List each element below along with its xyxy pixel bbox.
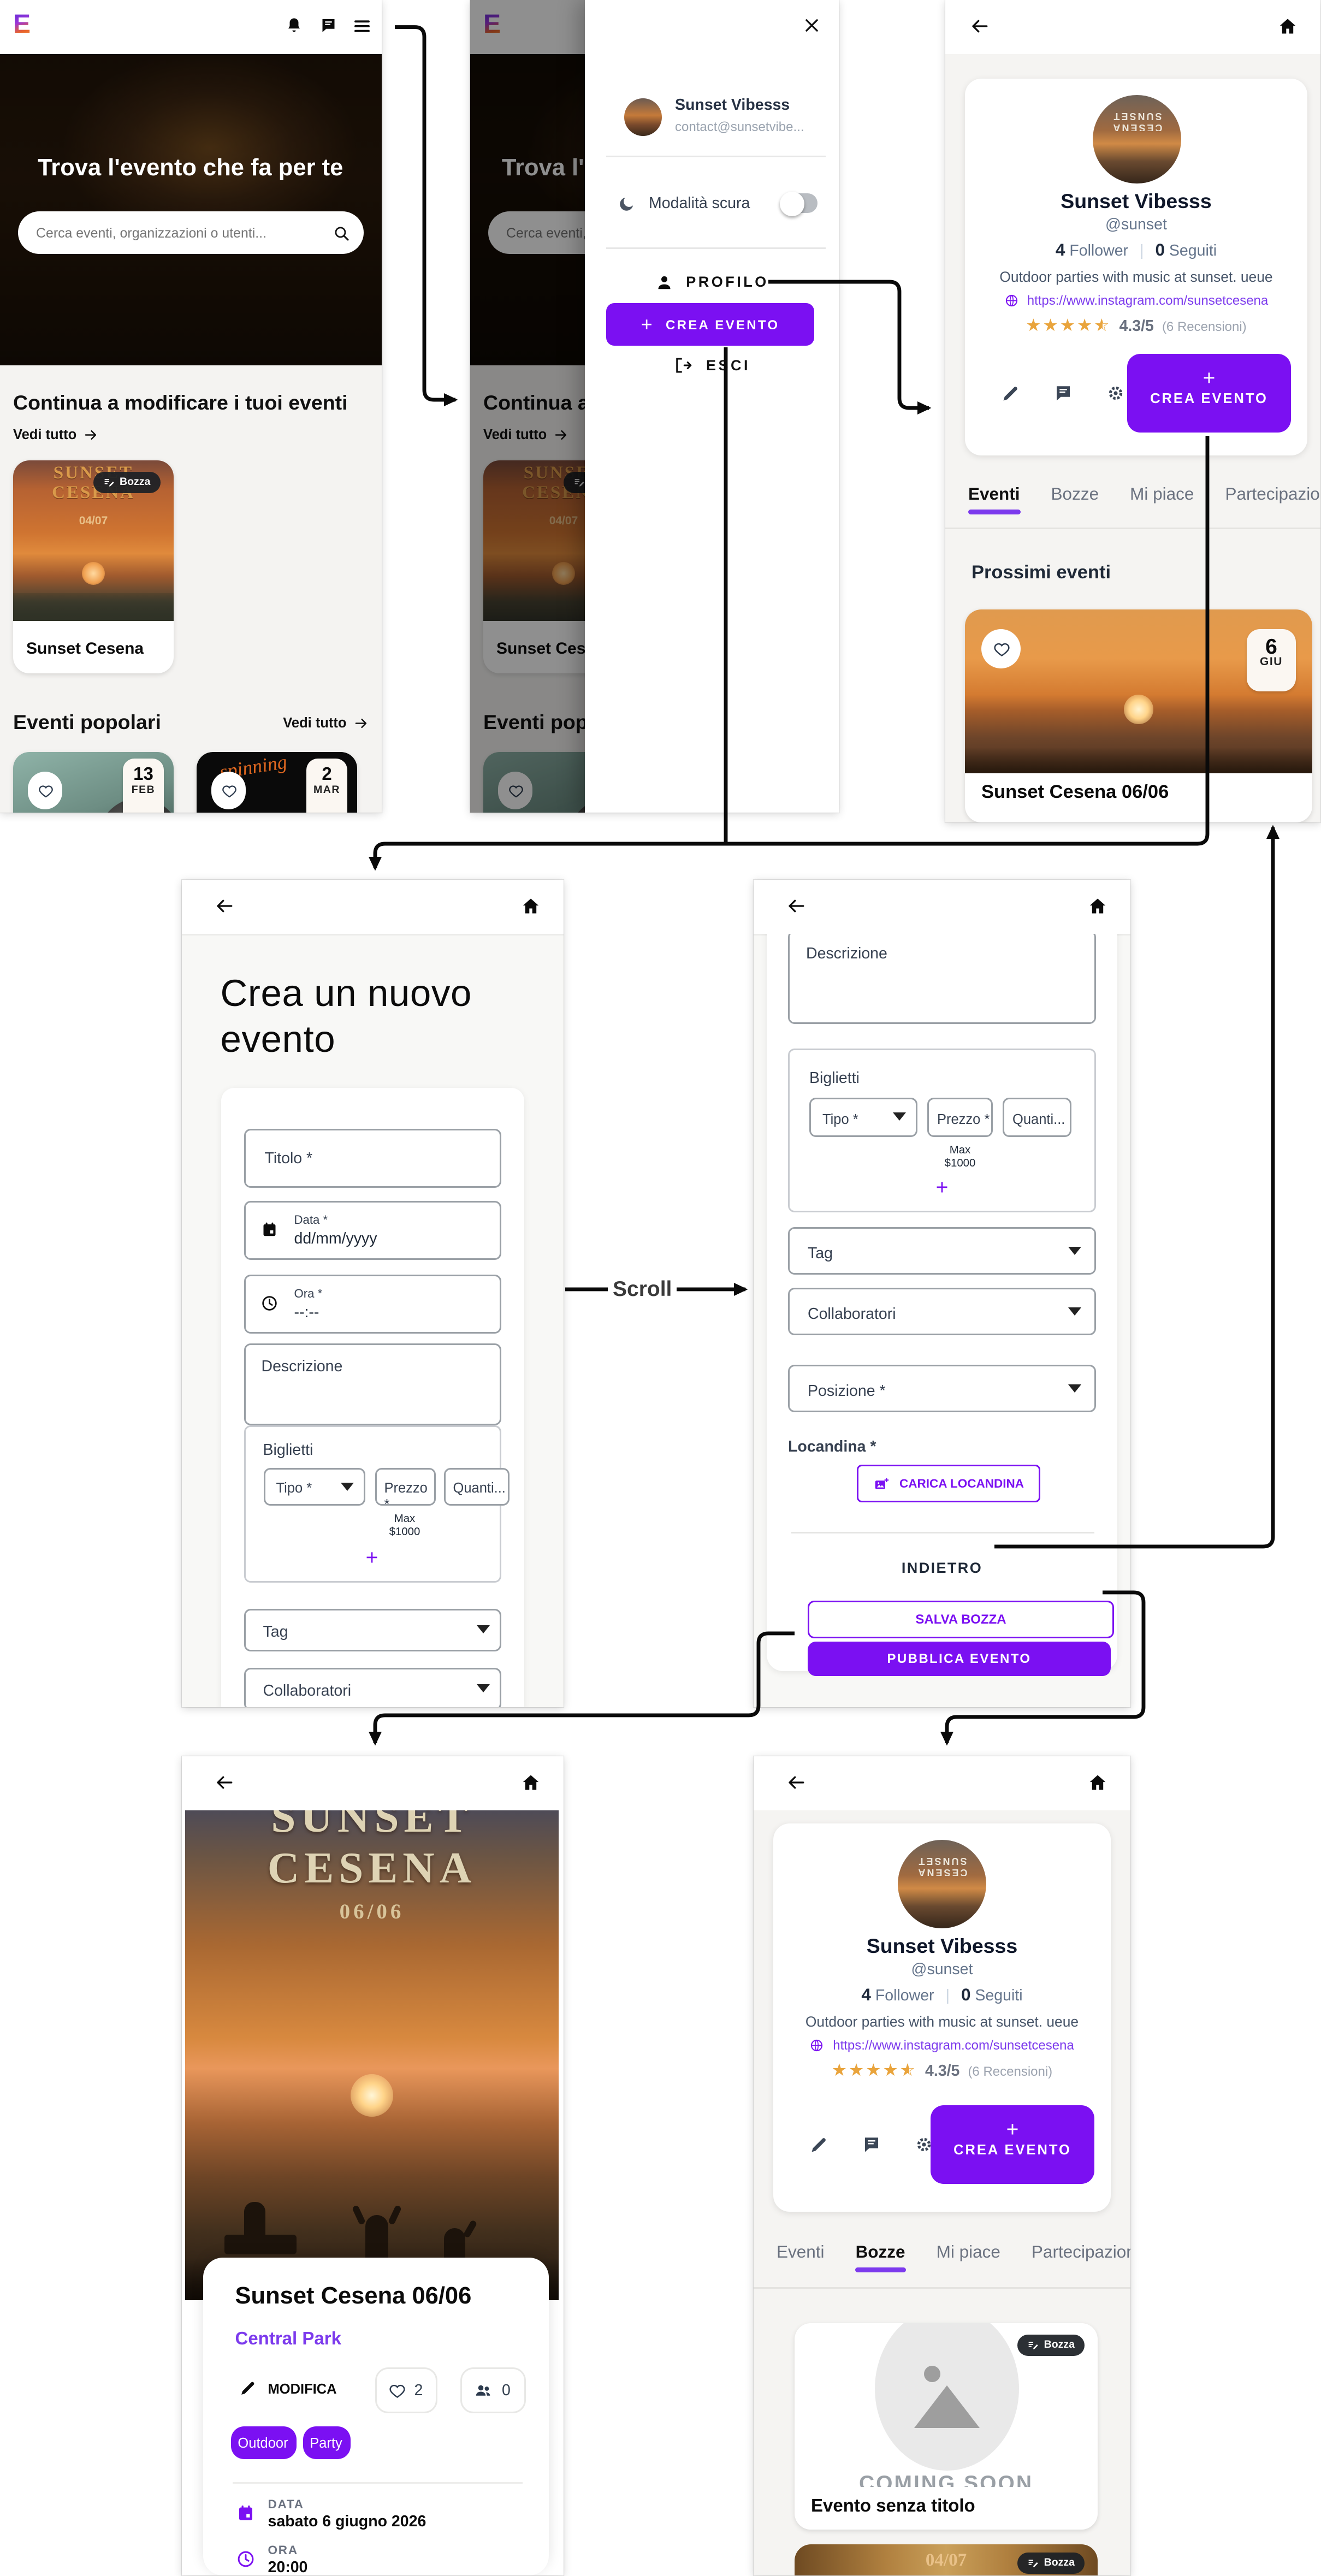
screen-create-event: Crea un nuovo evento Titolo * Data * dd/… — [181, 880, 563, 1707]
quantita-field[interactable]: Quanti... — [1003, 1098, 1071, 1137]
event-date-badge: 2 MAR — [306, 759, 347, 813]
screen-home-menu-open: E Trova l'evento che fa per te Continua … — [470, 0, 839, 813]
poster-date: 04/07 — [13, 516, 174, 528]
profile-handle: @sunset — [773, 1961, 1111, 1979]
website-link[interactable]: https://www.instagram.com/sunsetcesena — [833, 2038, 1074, 2053]
descrizione-label: Descrizione — [262, 1358, 343, 1376]
moon-icon — [618, 194, 636, 212]
event-date-badge: 13 FEB — [123, 759, 164, 813]
tipo-select[interactable]: Tipo * — [263, 1468, 365, 1506]
home-header: E — [0, 0, 381, 54]
screen-create-event-scrolled: Descrizione Biglietti Tipo * Prezzo * Qu… — [754, 880, 1130, 1707]
quantita-label: Quanti... — [453, 1479, 506, 1496]
data-label: Data * — [294, 1212, 328, 1227]
home-icon[interactable] — [1088, 896, 1107, 916]
tag-select[interactable]: Tag — [244, 1609, 501, 1651]
ora-label: ORA — [268, 2543, 298, 2557]
screen-profile: CESENASUNSET Sunset Vibesss @sunset 4 Fo… — [945, 0, 1321, 822]
posizione-select[interactable]: Posizione * — [788, 1365, 1096, 1412]
upcoming-event-card[interactable]: 6 GIU Sunset Cesena 06/06 — [965, 609, 1312, 822]
profile-card: CESENASUNSET Sunset Vibesss @sunset 4 Fo… — [773, 1823, 1111, 2212]
heart-icon — [992, 640, 1010, 658]
create-event-button[interactable]: + CREA EVENTO — [1127, 354, 1291, 433]
logout-menu-item[interactable]: ESCI — [585, 352, 839, 378]
event-month: GIU — [1247, 657, 1296, 668]
upload-poster-label: CARICA LOCANDINA — [899, 1476, 1024, 1491]
max-price-note: Max$1000 — [375, 1514, 435, 1540]
back-icon[interactable] — [214, 896, 234, 916]
publish-event-button[interactable]: PUBBLICA EVENTO — [808, 1642, 1111, 1676]
star-icons: ★★★★☆★ — [832, 2063, 917, 2081]
create-event-form: Titolo * Data * dd/mm/yyyy Ora * --:-- D… — [221, 1088, 524, 1707]
create-event-label: CREA EVENTO — [931, 2141, 1094, 2158]
profile-name: Sunset Vibesss — [965, 190, 1307, 213]
data-value: sabato 6 giugno 2026 — [268, 2513, 426, 2531]
profile-menu-item[interactable]: PROFILO — [585, 269, 839, 295]
ora-field[interactable]: Ora * --:-- — [244, 1275, 501, 1334]
descrizione-label: Descrizione — [806, 945, 887, 963]
posizione-label: Posizione * — [808, 1383, 886, 1401]
tab-mi-piace[interactable]: Mi piace — [1130, 485, 1194, 514]
back-icon[interactable] — [970, 16, 990, 36]
event-location-link[interactable]: Central Park — [235, 2330, 341, 2349]
poster-line2: CESENA — [185, 1843, 559, 1894]
see-all-drafts-link[interactable]: Vedi tutto — [13, 426, 98, 442]
add-ticket-button[interactable]: + — [790, 1175, 1094, 1199]
close-icon[interactable] — [803, 16, 821, 34]
settings-icon[interactable] — [1106, 383, 1125, 403]
biglietti-label: Biglietti — [263, 1442, 313, 1460]
popular-heading: Eventi popolari — [13, 711, 161, 734]
screen-profile-drafts: CESENASUNSET Sunset Vibesss @sunset 4 Fo… — [754, 1756, 1130, 2575]
add-ticket-button[interactable]: + — [245, 1545, 499, 1570]
clock-icon — [235, 2549, 255, 2569]
see-all-popular-link[interactable]: Vedi tutto — [283, 714, 368, 731]
tipo-label: Tipo * — [276, 1479, 312, 1496]
hero-title: Trova l'evento che fa per te — [0, 156, 381, 182]
screen-event-detail: SUNSET CESENA 06/06 Sunset Cesena 06/06 … — [181, 1756, 563, 2575]
publish-event-label: PUBBLICA EVENTO — [887, 1651, 1031, 1666]
star-icons: ★★★★☆★ — [1026, 318, 1111, 336]
website-link[interactable]: https://www.instagram.com/sunsetcesena — [1027, 293, 1269, 308]
max-price-note: Max$1000 — [927, 1145, 993, 1171]
continue-heading: Continua a modificare i tuoi eventi — [13, 392, 348, 414]
page-title: Crea un nuovo evento — [221, 972, 532, 1062]
home-icon[interactable] — [520, 896, 540, 916]
clock-icon — [260, 1294, 278, 1312]
edit-note-icon — [1028, 2340, 1039, 2351]
bozza-badge: Bozza — [93, 472, 160, 493]
menu-drawer: Sunset Vibesss contact@sunsetvibe... Mod… — [585, 0, 839, 813]
messages-icon[interactable] — [319, 16, 337, 34]
quantita-field[interactable]: Quanti... — [443, 1468, 509, 1506]
drawer-user-email: contact@sunsetvibe... — [675, 120, 826, 134]
image-plus-icon — [873, 1476, 890, 1492]
attendees-count: 0 — [502, 2382, 511, 2400]
globe-icon — [1004, 293, 1019, 308]
titolo-field[interactable]: Titolo * — [244, 1129, 501, 1188]
profile-bio: Outdoor parties with music at sunset. ue… — [965, 269, 1307, 285]
create-event-label: CREA EVENTO — [666, 317, 779, 332]
profile-card: CESENASUNSET Sunset Vibesss @sunset 4 Fo… — [965, 79, 1307, 455]
followers-count: 4 — [1056, 241, 1065, 260]
event-title: Sunset Cesena 06/06 — [981, 783, 1169, 803]
tab-partecipazioni[interactable]: Partecipazior — [1032, 2243, 1130, 2272]
create-event-button[interactable]: + CREA EVENTO — [931, 2105, 1094, 2184]
tab-bozze[interactable]: Bozze — [856, 2243, 905, 2272]
profile-name: Sunset Vibesss — [773, 1935, 1111, 1958]
tab-eventi[interactable]: Eventi — [968, 485, 1020, 514]
avatar: CESENASUNSET — [898, 1840, 986, 1928]
home-icon[interactable] — [1088, 1773, 1107, 1792]
create-event-label: CREA EVENTO — [1127, 390, 1291, 406]
event-poster: SUNSET CESENA 06/06 — [185, 1807, 559, 2300]
following-label: Seguiti — [1169, 242, 1217, 260]
tipo-select[interactable]: Tipo * — [809, 1098, 917, 1137]
event-month: MAR — [306, 785, 347, 796]
create-event-form: Descrizione Biglietti Tipo * Prezzo * Qu… — [767, 903, 1117, 1671]
collaboratori-select[interactable]: Collaboratori — [788, 1288, 1096, 1335]
drawer-user-name: Sunset Vibesss — [675, 97, 790, 115]
calendar-icon — [235, 2503, 255, 2523]
popular-event-card[interactable]: spinning 2 MAR — [197, 752, 357, 813]
create-event-button[interactable]: + CREA EVENTO — [606, 303, 814, 346]
tag-chip-party: Party — [303, 2426, 350, 2459]
event-info-card: Sunset Cesena 06/06 Central Park MODIFIC… — [203, 2258, 548, 2575]
modifica-button[interactable]: MODIFICA — [239, 2379, 337, 2397]
reviews-count: (6 Recensioni) — [1162, 319, 1247, 334]
collaboratori-select[interactable]: Collaboratori — [244, 1668, 501, 1707]
biglietti-group: Biglietti Tipo * Prezzo * Quanti... Max$… — [244, 1425, 501, 1583]
bozza-label: Bozza — [120, 477, 150, 488]
plus-icon: + — [1127, 365, 1291, 390]
caret-down-icon — [476, 1684, 489, 1692]
attendees-pill[interactable]: 0 — [460, 2367, 525, 2413]
profile-rating-row: ★★★★☆★ 4.3/5 (6 Recensioni) — [965, 318, 1307, 336]
prezzo-field[interactable]: Prezzo * — [927, 1098, 993, 1137]
data-field[interactable]: Data * dd/mm/yyyy — [244, 1201, 501, 1260]
data-value: dd/mm/yyyy — [294, 1230, 377, 1248]
logout-label: ESCI — [706, 357, 750, 374]
person-icon — [655, 273, 673, 291]
event-day: 13 — [123, 765, 164, 785]
event-month: FEB — [123, 785, 164, 796]
draft-card[interactable]: COMING SOON Bozza Evento senza titolo — [795, 2323, 1098, 2530]
tab-eventi[interactable]: Eventi — [777, 2243, 825, 2272]
profile-tabs: Eventi Bozze Mi piace Partecipazior — [968, 485, 1321, 514]
bozza-badge: Bozza — [1018, 2553, 1085, 2574]
plus-icon: + — [641, 313, 654, 336]
heart-icon — [37, 783, 54, 799]
poster-line1: SUNSET — [185, 1807, 559, 1843]
tag-select[interactable]: Tag — [788, 1227, 1096, 1275]
people-icon — [474, 2380, 494, 2400]
likes-count: 2 — [414, 2382, 423, 2400]
bozza-badge: Bozza — [1018, 2335, 1085, 2356]
pencil-icon — [239, 2379, 257, 2397]
search-input[interactable] — [36, 224, 332, 241]
biglietti-label: Biglietti — [809, 1070, 860, 1088]
draft-card[interactable]: 04/07 Bozza — [795, 2544, 1098, 2575]
biglietti-group: Biglietti Tipo * Prezzo * Quanti... Max$… — [788, 1049, 1096, 1212]
menu-icon[interactable] — [352, 16, 371, 36]
favorite-button[interactable] — [28, 772, 62, 809]
profile-stats: 4 Follower|0 Seguiti — [965, 241, 1307, 260]
profile-rating-row: ★★★★☆★ 4.3/5 (6 Recensioni) — [773, 2063, 1111, 2081]
tab-bozze[interactable]: Bozze — [1051, 485, 1099, 514]
arrow-menu-to-drawer — [395, 27, 455, 400]
modifica-label: MODIFICA — [268, 2380, 337, 2396]
followers-label: Follower — [1069, 242, 1128, 260]
heart-icon — [388, 2382, 406, 2400]
edit-profile-icon[interactable] — [809, 2135, 829, 2154]
caret-down-icon — [340, 1482, 353, 1490]
back-icon[interactable] — [214, 1773, 234, 1792]
notifications-icon[interactable] — [285, 16, 303, 34]
save-draft-label: SALVA BOZZA — [915, 1612, 1006, 1627]
rating-value: 4.3/5 — [925, 2063, 959, 2081]
home-body: Continua a modificare i tuoi eventi Vedi… — [0, 365, 381, 813]
scroll-annotation: Scroll — [608, 1276, 677, 1301]
dark-mode-toggle[interactable] — [781, 193, 818, 213]
draft-event-card[interactable]: SUNSETCESENA 04/07 Bozza Sunset Cesena — [13, 460, 174, 673]
hero-banner: Trova l'evento che fa per te — [0, 54, 381, 365]
profile-stats: 4 Follower|0 Seguiti — [773, 1986, 1111, 2005]
rating-value: 4.3/5 — [1119, 318, 1154, 336]
popular-event-card[interactable]: 13 FEB — [13, 752, 174, 813]
poster-date: 06/06 — [185, 1899, 559, 1925]
profile-bio: Outdoor parties with music at sunset. ue… — [773, 2014, 1111, 2030]
messages-icon[interactable] — [862, 2135, 881, 2154]
collaboratori-label: Collaboratori — [263, 1683, 352, 1701]
tag-chip-outdoor: Outdoor — [230, 2426, 296, 2459]
profile-website-row[interactable]: https://www.instagram.com/sunsetcesena — [965, 293, 1307, 308]
edit-profile-icon[interactable] — [1001, 383, 1021, 403]
event-title: Sunset Cesena 06/06 — [235, 2284, 472, 2310]
profile-website-row[interactable]: https://www.instagram.com/sunsetcesena — [773, 2038, 1111, 2053]
titolo-label: Titolo * — [265, 1150, 313, 1168]
likes-pill[interactable]: 2 — [375, 2367, 437, 2413]
caret-down-icon — [476, 1625, 489, 1633]
event-day: 6 — [1247, 637, 1296, 657]
arrow-right-icon — [353, 715, 368, 730]
prezzo-field[interactable]: Prezzo * — [375, 1468, 435, 1506]
event-date-badge: 6 GIU — [1247, 629, 1296, 691]
calendar-icon — [260, 1221, 278, 1239]
draft-title: Evento senza titolo — [811, 2497, 975, 2516]
profile-menu-label: PROFILO — [686, 274, 769, 290]
dark-mode-label: Modalità scura — [649, 194, 750, 212]
logout-icon — [673, 356, 693, 375]
profile-handle: @sunset — [965, 216, 1307, 234]
back-icon[interactable] — [786, 1773, 806, 1792]
favorite-button[interactable] — [981, 629, 1021, 668]
back-step-button[interactable]: INDIETRO — [767, 1560, 1117, 1576]
app-logo: E — [13, 8, 31, 44]
arrow-right-icon — [83, 427, 98, 442]
edit-note-icon — [103, 477, 115, 488]
messages-icon[interactable] — [1053, 383, 1073, 403]
event-day: 2 — [306, 765, 347, 785]
search-bar[interactable] — [18, 211, 363, 254]
descrizione-field[interactable]: Descrizione — [244, 1343, 501, 1425]
avatar — [624, 98, 662, 136]
upcoming-heading: Prossimi eventi — [972, 564, 1111, 583]
see-all-label: Vedi tutto — [283, 714, 346, 731]
ora-value: --:-- — [294, 1304, 319, 1322]
prezzo-label: Prezzo * — [384, 1479, 434, 1512]
ora-value: 20:00 — [268, 2559, 308, 2575]
profile-tabs: Eventi Bozze Mi piace Partecipazior — [777, 2243, 1130, 2272]
tag-label: Tag — [263, 1624, 288, 1642]
globe-icon — [810, 2038, 825, 2053]
home-icon[interactable] — [520, 1773, 540, 1792]
search-icon[interactable] — [332, 224, 350, 242]
avatar: CESENASUNSET — [1092, 95, 1181, 183]
draft-card-title: Sunset Cesena — [26, 641, 144, 659]
screen-home: E Trova l'evento che fa per te Continua … — [0, 0, 381, 813]
upload-poster-button[interactable]: CARICA LOCANDINA — [857, 1465, 1040, 1502]
favorite-button[interactable] — [211, 772, 246, 809]
descrizione-field[interactable]: Descrizione — [788, 931, 1096, 1024]
plus-icon: + — [931, 2117, 1094, 2141]
bozza-label: Bozza — [1044, 2340, 1075, 2351]
tab-mi-piace[interactable]: Mi piace — [937, 2243, 1000, 2272]
bozza-label: Bozza — [1044, 2557, 1075, 2569]
see-all-label: Vedi tutto — [13, 426, 76, 442]
following-count: 0 — [1155, 241, 1165, 260]
locandina-label: Locandina * — [788, 1438, 876, 1456]
reviews-count: (6 Recensioni) — [968, 2064, 1052, 2079]
ora-label: Ora * — [294, 1286, 323, 1301]
back-icon[interactable] — [786, 896, 806, 916]
tab-partecipazioni[interactable]: Partecipazior — [1225, 485, 1321, 514]
data-label: DATA — [268, 2497, 304, 2512]
heart-icon — [221, 783, 237, 799]
home-icon[interactable] — [1278, 16, 1298, 36]
dark-mode-row: Modalità scura — [585, 188, 839, 218]
save-draft-button[interactable]: SALVA BOZZA — [808, 1601, 1114, 1638]
flow-canvas: E Trova l'evento che fa per te Continua … — [0, 0, 1321, 2576]
